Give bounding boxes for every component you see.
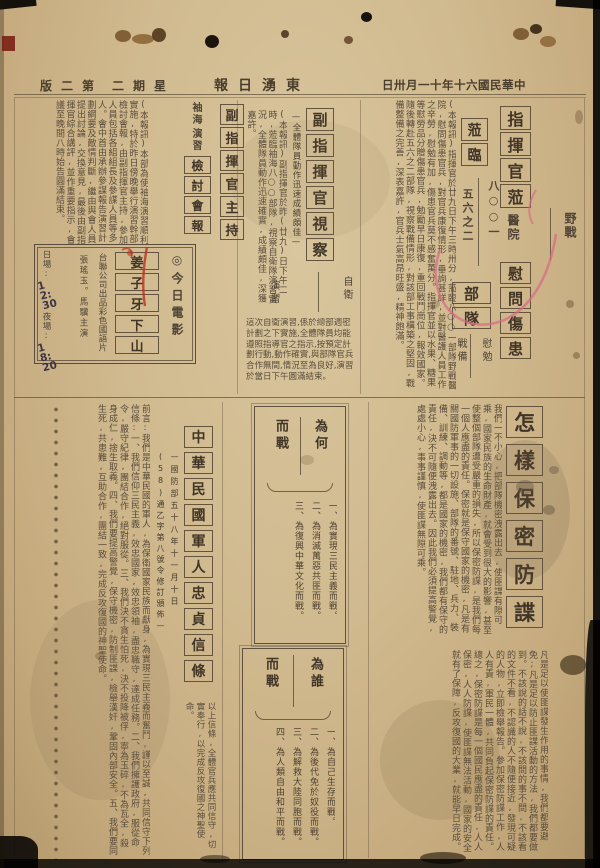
unit-number-right: 八○○一 [485,180,501,240]
hole-punch-dot [205,35,219,48]
scan-edge [0,859,600,868]
headline-box-char: 臨 [461,143,488,166]
why-fight-items: 一、為實現三民主義而戰。二、為消滅萬惡共匪而戰。三、為復興中華文化而戰。 [263,501,337,635]
headline-box-char: 部 [452,282,491,304]
newspaper-page: 版二第 二期星 報日湧東 日卅月一十年十六國民華中 指揮官蒞 蒞臨 八○○一 五… [0,0,600,868]
whom-fight-header-line [293,655,294,707]
movie-box: ◎今日電影 姜子牙下山 台聯公司出品彩色國語片 張瑤玉。馬驥主演 日場: 12:… [34,244,196,364]
headline-box-char: 討 [184,176,211,194]
headline-box-char: 會 [184,196,211,214]
security-body-1: 我們一不小心,把部隊機密洩露出去,使匪諜有隙可乘,國家民族的生命財產,就會受到很… [380,404,502,642]
headline-box-char: 副 [220,104,244,125]
headline-box-char: 蒞 [500,184,531,208]
creed-subtitle-right: —國防部五十八年十一月十日 [167,452,180,700]
list-item: 一、為自己生存而戰。 [324,727,335,851]
bottom-divider-2 [222,402,223,858]
why-fight-header-right: 為何 [310,419,329,453]
headline-box-char: 指 [306,134,334,157]
list-item: 三、為解救大陸同胞而戰。 [290,727,301,851]
headline-commander: 指揮官蒞 [500,106,531,208]
ornament-dotted-border [50,404,63,860]
headline-box-char: 國 [184,504,213,526]
stain [115,30,131,42]
stain [281,30,289,38]
movie-night-time-handwritten: 18:20 [37,341,59,374]
headline-box-char: 諜 [506,596,543,628]
masthead-page-number: 版二第 [40,77,103,94]
stain [543,505,555,515]
creed-subtitle-left: (58)通乙字第八號令修訂頒佈— [153,452,166,700]
headline-box-char: 察 [306,238,334,261]
scan-edge [0,836,38,868]
headline-box-char: 姜 [115,252,159,270]
list-item: 二、為消滅萬惡共匪而戰。 [309,501,320,635]
why-fight-header-line [300,417,301,475]
headline-box-char: 中 [184,426,213,448]
unit-number-left: 五六之二 [459,188,475,244]
headline-security: 怎樣保密防諜 [506,406,543,628]
headline-creed: 中華民國軍人忠貞信條 [184,426,213,682]
list-item: 三、為復興中華文化而戰。 [292,501,303,635]
headline-box-char: 指 [500,106,531,130]
whom-fight-brace [255,711,331,720]
unit-divider-line [478,178,479,266]
headline-box-char: 揮 [220,150,244,171]
deputy-article-body2: 這次自衛演習,係於總部週密計劃之下實施,全體隊員均能遵照指導官之指示,按預定計劃… [246,318,358,394]
stain [549,466,559,474]
movie-box-label: ◎今日電影 [169,253,186,340]
place-label-left: 醫院 [505,214,522,242]
headline-box-char: 軍 [184,530,213,552]
bottom-divider-1 [368,402,369,858]
headline-box-char: 檢 [184,156,211,174]
deputy-tag-left: 演習 [266,280,281,306]
headline-review-chair: 副指揮官主持 [220,104,244,240]
headline-box-char: 揮 [500,132,531,156]
deputy-tag-right: 自衛 [339,276,354,302]
headline-box-char: 患 [500,337,531,359]
headline-box-char: 持 [220,219,244,240]
list-item: 一、為實現三民主義而戰。 [326,501,337,635]
stain [530,24,542,34]
stain [513,28,529,40]
headline-box-char: 官 [306,186,334,209]
headline-box-char: 信 [184,634,213,656]
review-tag-top: 袖海 [188,102,203,126]
tag-right: 慰勉 [478,338,493,364]
headline-box-char: 官 [220,173,244,194]
headline-box-char: 慰 [500,262,531,284]
headline-review: 檢討會報 [184,156,211,234]
headline-box-char: 防 [506,558,543,590]
stain [132,34,154,44]
headline-box-char: 條 [184,660,213,682]
deputy-side-note: —全體隊員動作迅速成績頗佳— [289,112,302,288]
headline-box-char: 視 [306,212,334,235]
deputy-article-body: (本報訊)副指揮官於昨(廿九)日下午二時,蒞臨袖海八○○部隊,視察自衛隊演習實況… [240,110,287,306]
masthead-date: 日卅月一十年十六國民華中 [382,77,526,93]
movie-company: 台聯公司出品彩色國語片 [96,253,108,359]
headline-box-char: 民 [184,478,213,500]
headline-box-char: 保 [506,482,543,514]
masthead-rule-2 [14,97,586,98]
commander-article-body: (本報訊)指揮官於廿九日下午三時卅分,蒞臨八○○一部隊野戰醫院,慰問傷患官兵,對… [364,100,456,394]
headline-box-char: 副 [306,108,334,131]
mid-horizontal-rule [14,397,585,398]
stain [573,352,580,359]
place-label-right: 野戰 [562,212,579,240]
hole-punch-dot [361,12,372,22]
stain [566,300,574,308]
movie-cast: 張瑤玉。馬驥主演 [77,255,89,357]
stain [152,28,166,42]
headline-box-char: 子 [115,273,159,291]
headline-box-char: 貞 [184,608,213,630]
stain [540,36,556,47]
whom-fight-header-right: 為誰 [306,657,325,691]
headline-box-char: 密 [506,520,543,552]
movie-day-label: 日場: [40,250,52,280]
headline-box-char: 問 [500,287,531,309]
creed-body: 前言:我們是中華民國的軍人,為保衛國家民族而獻身,為實現三民主義而奮鬥,謹以至誠… [66,404,150,856]
whom-fight-header-left: 而戰 [261,657,280,691]
headline-box-char: 主 [220,196,244,217]
headline-commander-2: 蒞臨 [461,118,488,166]
why-fight-box: 為何 而戰 一、為實現三民主義而戰。二、為消滅萬惡共匪而戰。三、為復興中華文化而… [254,406,346,644]
scan-edge [0,0,37,10]
whom-fight-items: 一、為自己生存而戰。二、為後代免於奴役而戰。三、為解救大陸同胞而戰。四、為人類自… [251,727,335,851]
headline-box-char: 下 [115,315,159,333]
scan-edge [585,620,600,868]
headline-box-char: 指 [220,127,244,148]
list-item: 四、為人類自由和平而戰。 [273,727,284,851]
headline-box-char: 傷 [500,312,531,334]
headline-box-char: 忠 [184,582,213,604]
why-fight-brace [267,483,333,492]
masthead-weekday: 二期星 [112,77,175,94]
list-item: 二、為後代免於奴役而戰。 [307,727,318,851]
headline-box-char: 山 [115,336,159,354]
headline-box-char: 人 [184,556,213,578]
creed-note: 以上信條,全體官兵應共同信守,切實奉行,以完成反攻復國之神聖使命。 [152,702,216,852]
headline-box-char: 隊 [452,307,491,329]
scan-edge-shade [0,0,4,868]
review-article-body: (本報訊)本部為使袖海演習順利實施,特於昨日傍晚舉行演習幹部檢討會報,由副指揮官… [18,100,148,248]
review-tag-bottom: 演習 [188,128,203,152]
masthead-paper-name: 報日湧東 [214,75,310,95]
stain [344,36,353,44]
headline-box-char: 樣 [506,444,543,476]
scan-edge [556,0,600,10]
masthead-rule [14,94,586,95]
why-fight-header-left: 而戰 [271,419,290,453]
headline-box-char: 官 [500,158,531,182]
red-corner-mark [2,36,15,51]
security-body-2: 凡是足以使匪諜發生作用的事情,我們都要避免;凡是足以防止匪諜活動的方法,我們都要… [380,650,548,858]
stain [575,110,583,124]
deputy-tag-line [318,272,319,312]
stain [560,655,586,675]
headline-box-char: 揮 [306,160,334,183]
headline-box-char: 報 [184,216,211,234]
headline-comfort: 慰問傷患 [500,262,531,359]
whom-fight-box: 為誰 而戰 一、為自己生存而戰。二、為後代免於奴役而戰。三、為解救大陸同胞而戰。… [242,648,344,860]
top-divider-1 [360,100,361,394]
unit-boxes: 部隊 [452,282,491,329]
stain [200,855,230,863]
left-border-line [14,98,15,858]
right-border-line [584,98,585,858]
headline-box-char: 怎 [506,406,543,438]
scan-edge [593,0,600,868]
headline-box-char: 華 [184,452,213,474]
movie-title-boxes: 姜子牙下山 [115,252,159,354]
headline-deputy: 副指揮官視察 [306,108,334,261]
headline-box-char: 蒞 [461,118,488,141]
movie-day-time-handwritten: 12:30 [37,279,59,312]
tag-divider-line [470,334,471,378]
headline-box-char: 牙 [115,294,159,312]
movie-showtimes: 日場: 12:30 夜場: 18:20 [40,250,62,372]
place-divider-line [550,208,551,260]
movie-night-label: 夜場: [40,312,52,342]
